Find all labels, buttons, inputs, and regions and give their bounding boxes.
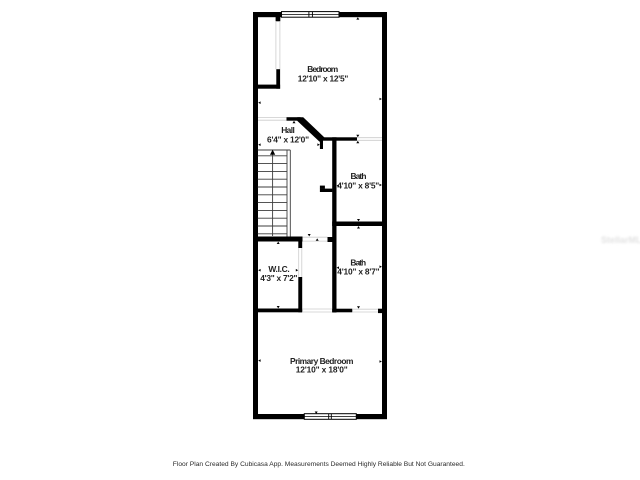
svg-text:12'10" x 12'5": 12'10" x 12'5" (298, 74, 349, 84)
svg-text:4'3" x 7'2": 4'3" x 7'2" (260, 273, 297, 283)
svg-text:4'10" x 8'5": 4'10" x 8'5" (337, 180, 379, 190)
svg-text:6'4" x 12'0": 6'4" x 12'0" (267, 134, 309, 144)
svg-text:Floor Plan Created By Cubicasa: Floor Plan Created By Cubicasa App. Meas… (173, 461, 465, 468)
svg-text:4'10" x 8'7": 4'10" x 8'7" (337, 266, 379, 276)
svg-text:StellarMLS: StellarMLS (601, 235, 640, 245)
svg-text:Bedroom: Bedroom (307, 64, 338, 74)
svg-text:12'10" x 18'0": 12'10" x 18'0" (296, 364, 348, 374)
